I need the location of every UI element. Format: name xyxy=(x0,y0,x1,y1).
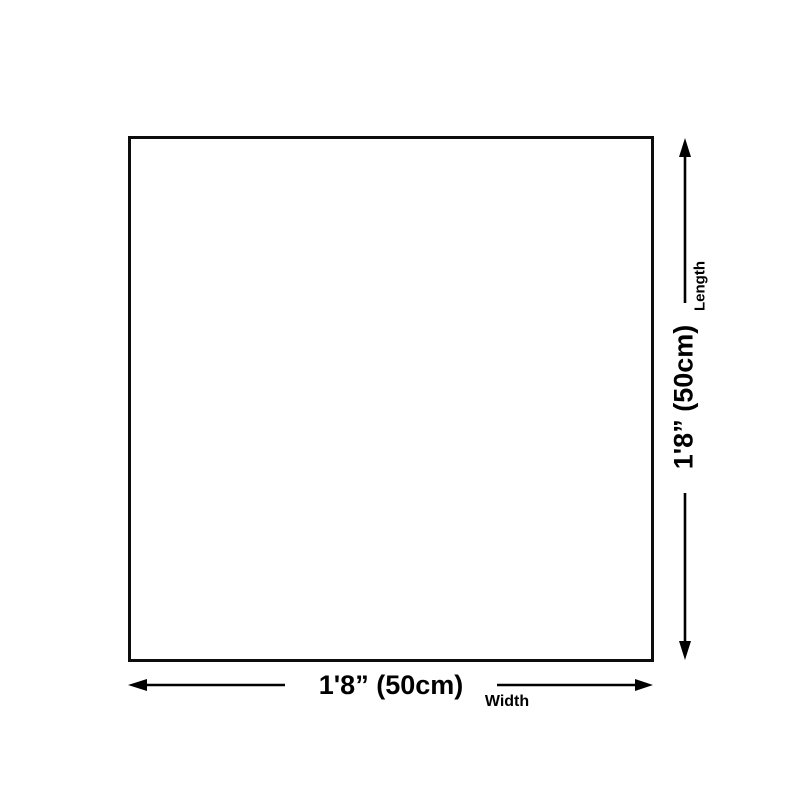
product-outline-square xyxy=(128,136,654,662)
arrow-down-icon xyxy=(679,641,691,660)
arrow-up-icon xyxy=(679,138,691,157)
length-label: Length xyxy=(692,261,709,311)
length-value: 1'8” (50cm) xyxy=(669,325,700,470)
width-value: 1'8” (50cm) xyxy=(128,669,654,702)
dimension-diagram: 1'8” (50cm) Width 1'8” (50cm) Length xyxy=(0,0,800,800)
width-label: Width xyxy=(452,693,562,711)
